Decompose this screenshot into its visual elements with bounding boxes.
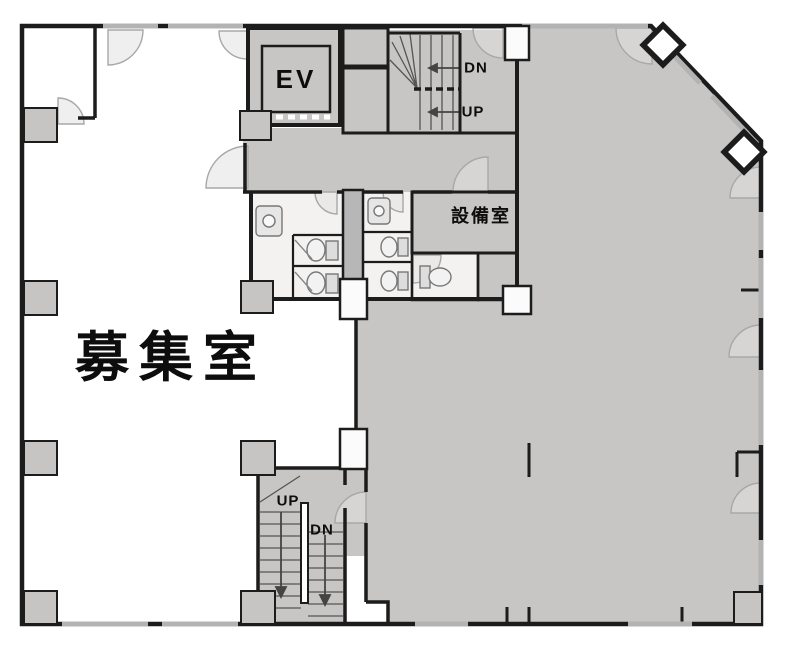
toilet [307,272,325,294]
toilet-tank [398,272,408,290]
lower-stairs-up-label: UP [277,494,300,509]
column [240,111,271,140]
equipment-room-label: 設備室 [451,207,511,225]
toilet [381,271,397,291]
column [340,279,367,319]
column [241,591,275,624]
column [24,281,57,315]
column [734,592,762,624]
column [503,286,531,314]
washbasin-bowl [374,206,384,216]
elevator-label: EV [276,66,317,92]
toilet-tank [326,241,338,260]
closet-wall [78,26,95,118]
toilet-tank [398,238,408,256]
vacancy-room-label: 募集室 [75,331,267,385]
upper-stairs-down-label: DN [464,61,488,76]
toilet [429,268,451,286]
door-arc [219,31,247,59]
toilet [381,237,397,257]
column [24,591,57,624]
column [24,108,57,142]
stair-stringer [301,503,308,603]
column [241,281,273,313]
door-arc [108,30,143,65]
washbasin-bowl [263,215,275,227]
column [505,26,529,60]
door-arc [58,98,84,124]
column [340,429,367,469]
pipe-shaft-2 [343,68,388,133]
column [241,441,275,475]
toilet [307,239,325,261]
upper-stairs-up-label: UP [462,105,485,120]
column [24,441,57,475]
floor-plan: EV DN UP 設備室 募集室 UP DN [0,0,787,657]
pipe-shaft-1 [343,28,388,66]
lower-stairs-down-label: DN [310,523,334,538]
door-arc [206,146,248,188]
toilet-tank [326,274,338,293]
